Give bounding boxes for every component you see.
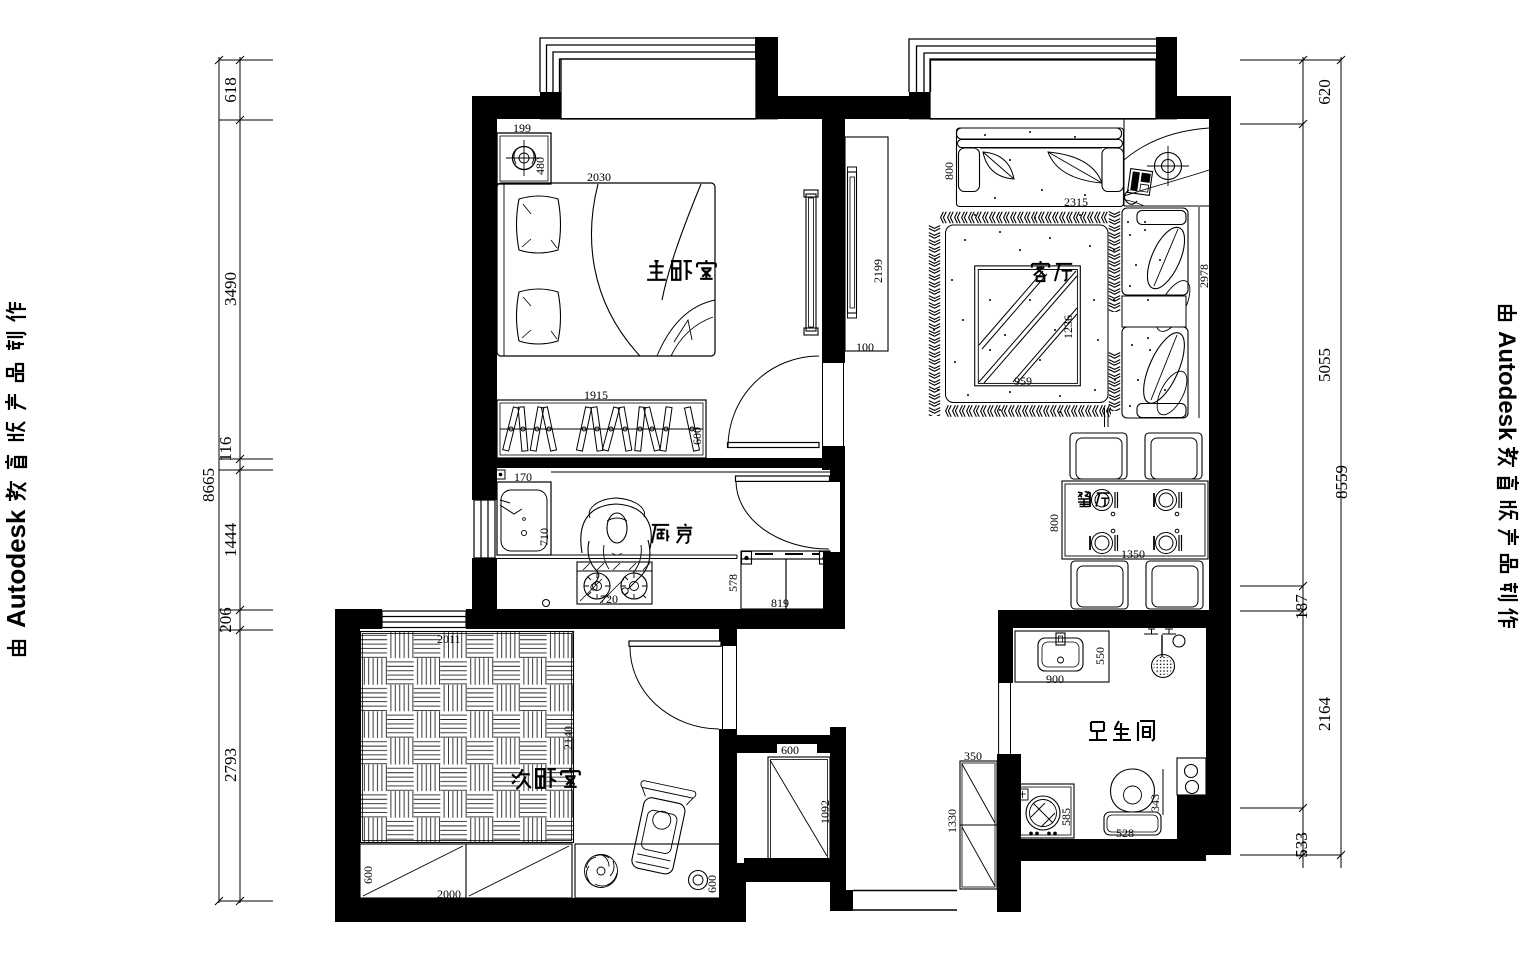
svg-text:600: 600 <box>705 875 719 893</box>
svg-text:350: 350 <box>964 749 982 763</box>
svg-text:2164: 2164 <box>1315 697 1334 732</box>
svg-text:2199: 2199 <box>871 259 885 283</box>
svg-text:2000: 2000 <box>437 887 461 901</box>
svg-text:1444: 1444 <box>221 523 240 558</box>
svg-text:620: 620 <box>1315 79 1334 105</box>
svg-text:2030: 2030 <box>587 170 611 184</box>
svg-text:800: 800 <box>942 162 956 180</box>
svg-text:720: 720 <box>600 592 618 606</box>
svg-text:Autodesk: Autodesk <box>1 509 31 628</box>
svg-text:2140: 2140 <box>561 726 575 750</box>
svg-text:2978: 2978 <box>1197 264 1211 288</box>
svg-text:819: 819 <box>771 596 789 610</box>
svg-text:1915: 1915 <box>584 388 608 402</box>
svg-text:959: 959 <box>1014 374 1032 388</box>
svg-text:206: 206 <box>216 607 235 633</box>
svg-text:1236: 1236 <box>1061 315 1075 339</box>
svg-text:1092: 1092 <box>818 800 832 824</box>
svg-text:900: 900 <box>1046 672 1064 686</box>
svg-text:100: 100 <box>856 340 874 354</box>
svg-text:343: 343 <box>1148 794 1162 812</box>
svg-text:8559: 8559 <box>1332 465 1351 499</box>
svg-text:2315: 2315 <box>1064 195 1088 209</box>
svg-text:1350: 1350 <box>1121 547 1145 561</box>
svg-text:618: 618 <box>221 77 240 103</box>
svg-text:1330: 1330 <box>945 809 959 833</box>
svg-text:187: 187 <box>1292 594 1311 620</box>
svg-text:528: 528 <box>1116 826 1134 840</box>
svg-text:170: 170 <box>514 470 532 484</box>
svg-text:585: 585 <box>1059 808 1073 826</box>
svg-text:578: 578 <box>726 574 740 592</box>
svg-text:5055: 5055 <box>1315 348 1334 382</box>
svg-text:8665: 8665 <box>199 468 218 502</box>
svg-text:600: 600 <box>781 743 799 757</box>
svg-text:116: 116 <box>216 437 235 462</box>
svg-text:800: 800 <box>1047 514 1061 532</box>
svg-text:2793: 2793 <box>221 748 240 782</box>
svg-text:600: 600 <box>690 427 704 445</box>
svg-text:710: 710 <box>537 528 551 546</box>
svg-text:Autodesk: Autodesk <box>1493 331 1520 441</box>
svg-text:3490: 3490 <box>221 272 240 306</box>
svg-text:199: 199 <box>513 121 531 135</box>
svg-text:550: 550 <box>1093 647 1107 665</box>
svg-text:533: 533 <box>1292 832 1311 858</box>
svg-text:480: 480 <box>533 157 547 175</box>
svg-text:600: 600 <box>361 866 375 884</box>
svg-text:2011: 2011 <box>437 632 461 646</box>
